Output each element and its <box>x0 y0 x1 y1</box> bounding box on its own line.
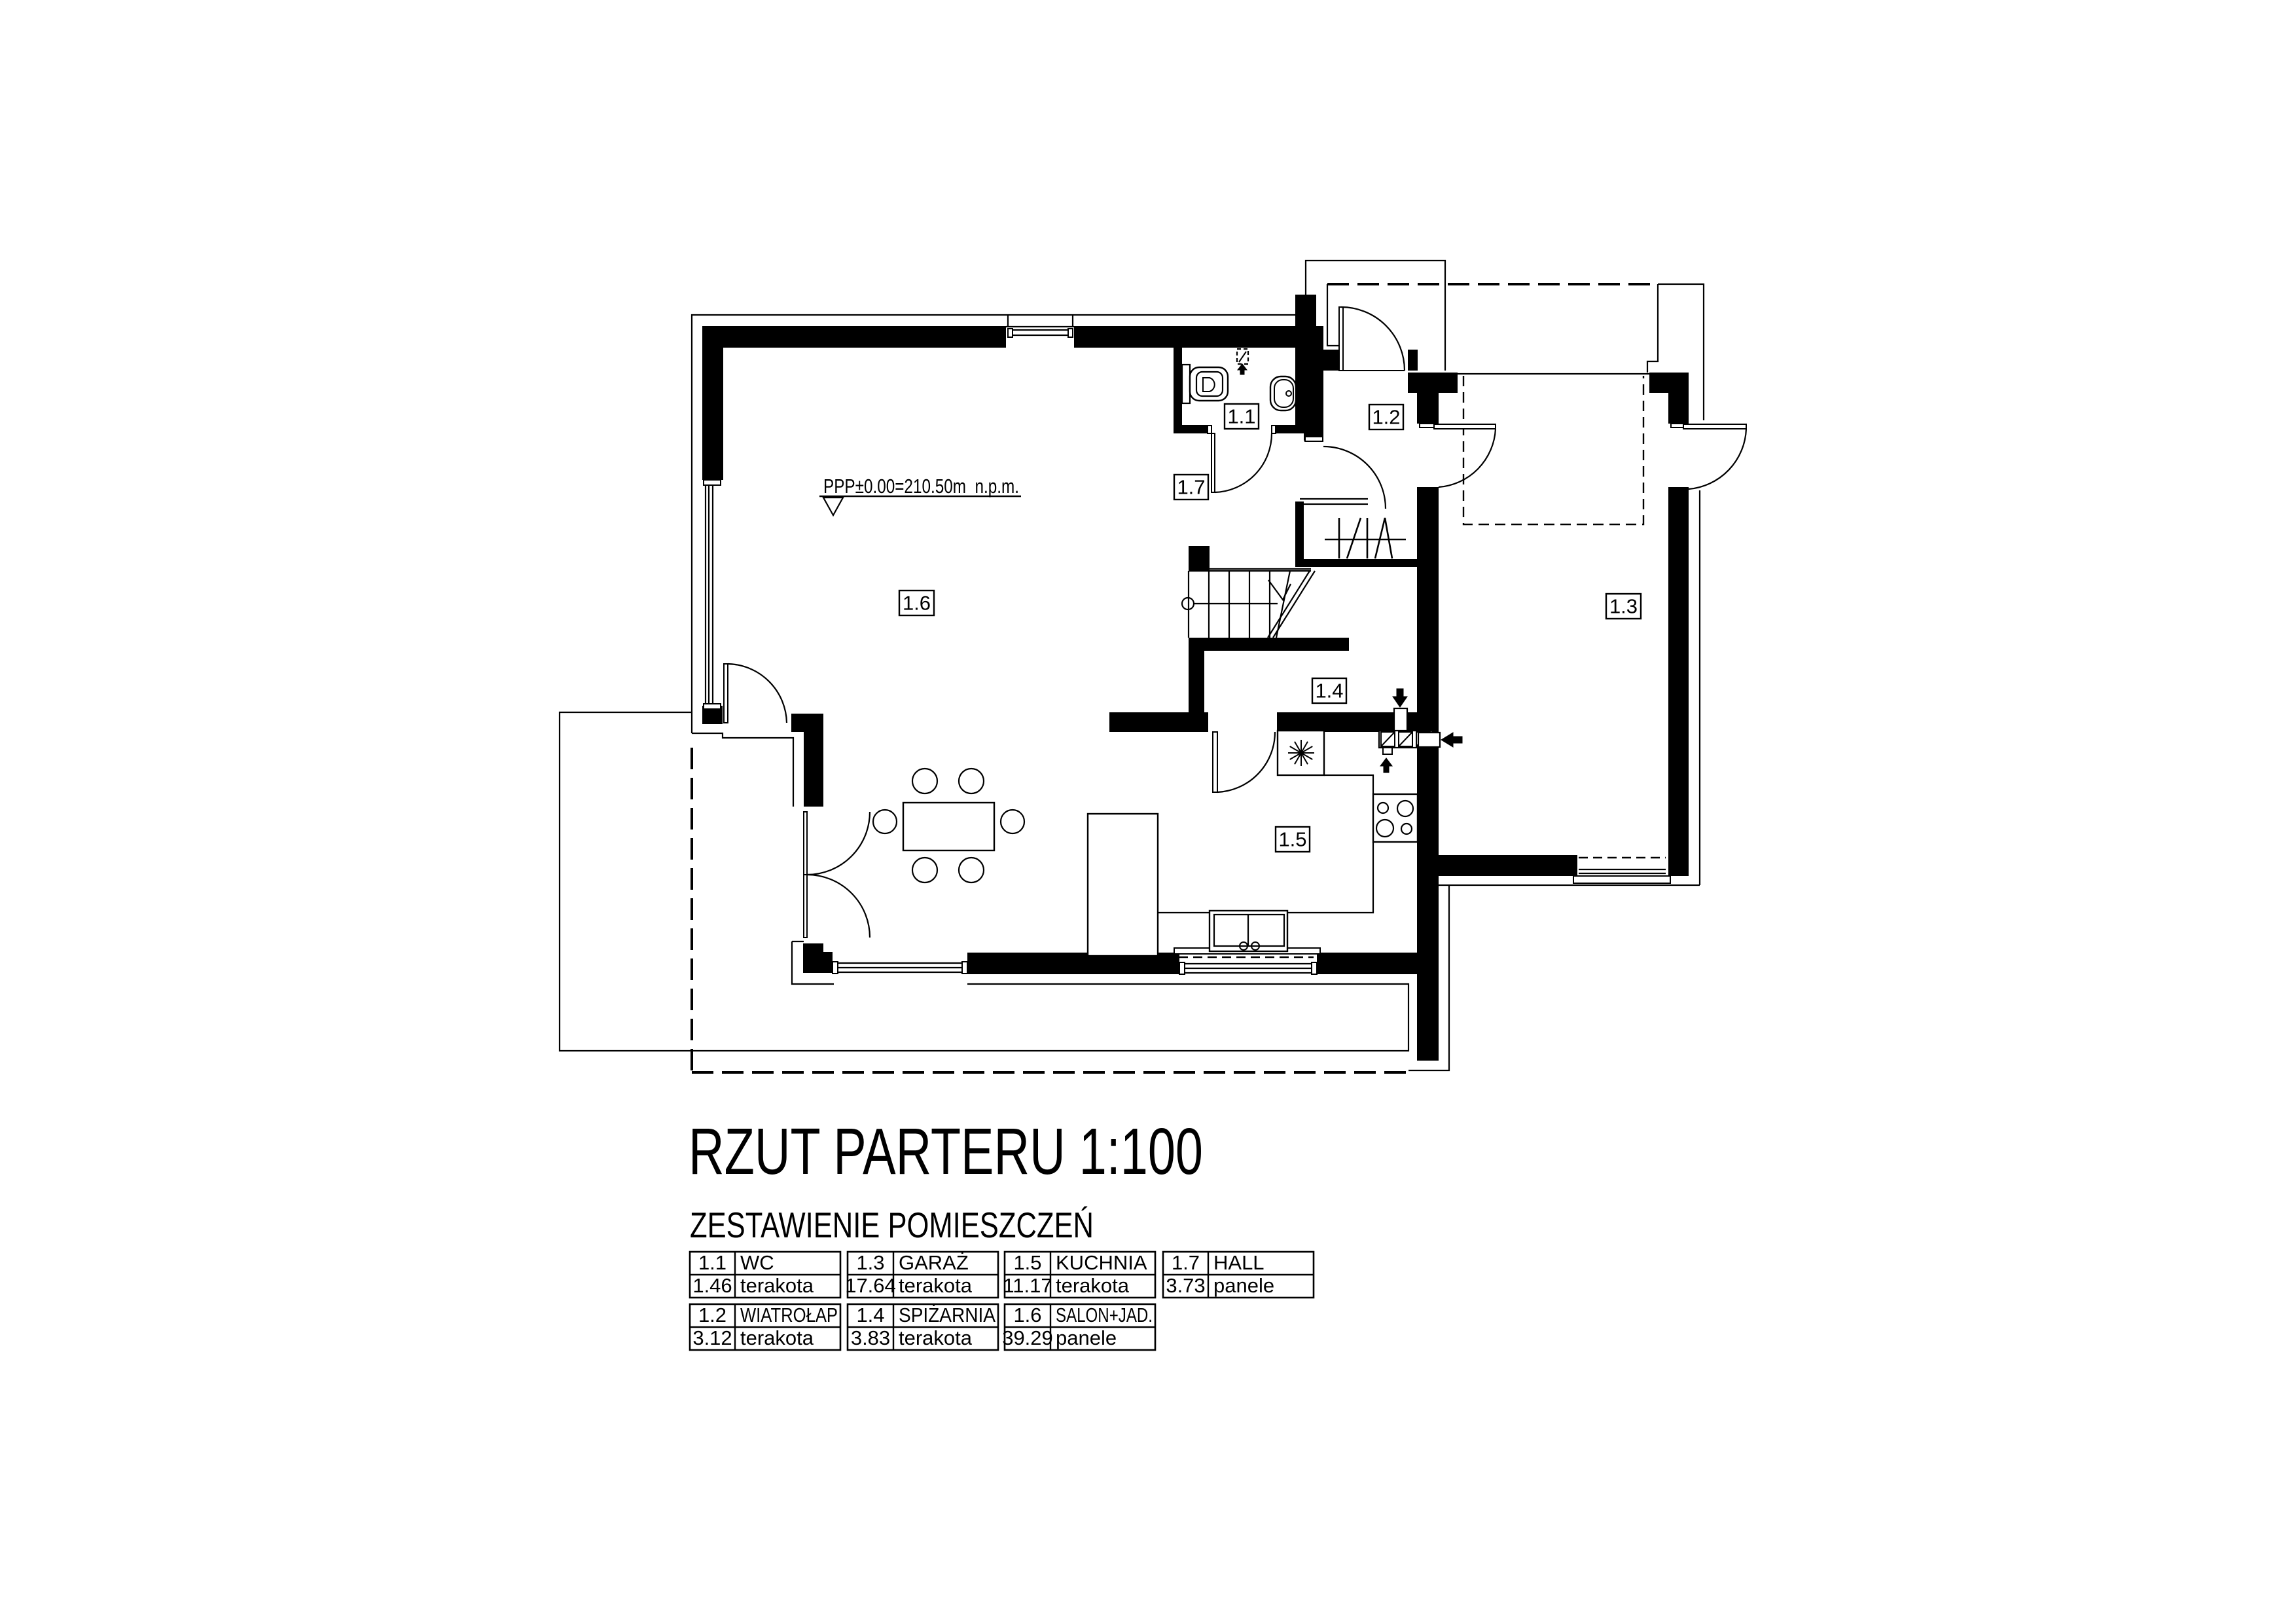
svg-text:WC: WC <box>740 1251 774 1274</box>
svg-text:ZESTAWIENIE POMIESZCZEŃ: ZESTAWIENIE POMIESZCZEŃ <box>690 1205 1094 1245</box>
svg-text:PPP±0.00=210.50m n.p.m.: PPP±0.00=210.50m n.p.m. <box>823 475 1019 498</box>
svg-text:terakota: terakota <box>1056 1274 1130 1297</box>
svg-text:terakota: terakota <box>899 1274 973 1297</box>
svg-text:1.5: 1.5 <box>1278 828 1306 851</box>
svg-text:11.17: 11.17 <box>1003 1274 1052 1297</box>
svg-text:1.2: 1.2 <box>698 1304 726 1326</box>
svg-text:1.6: 1.6 <box>1013 1304 1041 1326</box>
svg-text:1.2: 1.2 <box>1372 406 1400 429</box>
svg-text:1.7: 1.7 <box>1172 1251 1200 1274</box>
svg-text:1.6: 1.6 <box>903 592 931 615</box>
svg-text:SPIŻARNIA: SPIŻARNIA <box>899 1304 996 1326</box>
svg-text:1.4: 1.4 <box>856 1304 884 1326</box>
svg-text:KUCHNIA: KUCHNIA <box>1056 1251 1147 1274</box>
svg-text:WIATROŁAP: WIATROŁAP <box>740 1304 838 1326</box>
svg-text:1.5: 1.5 <box>1013 1251 1041 1274</box>
svg-text:39.29: 39.29 <box>1002 1326 1053 1349</box>
svg-text:1.7: 1.7 <box>1177 476 1205 499</box>
svg-text:1.1: 1.1 <box>698 1251 726 1274</box>
svg-text:1.3: 1.3 <box>856 1251 884 1274</box>
svg-text:1.46: 1.46 <box>692 1274 732 1297</box>
svg-text:3.83: 3.83 <box>851 1326 890 1349</box>
svg-text:SALON+JAD.: SALON+JAD. <box>1056 1304 1153 1326</box>
svg-text:GARAŻ: GARAŻ <box>899 1251 969 1274</box>
svg-text:terakota: terakota <box>899 1326 973 1349</box>
svg-text:HALL: HALL <box>1213 1251 1265 1274</box>
svg-text:3.73: 3.73 <box>1166 1274 1205 1297</box>
svg-text:1.3: 1.3 <box>1609 595 1638 618</box>
svg-text:3.12: 3.12 <box>692 1326 732 1349</box>
svg-text:17.64: 17.64 <box>845 1274 896 1297</box>
svg-text:1.4: 1.4 <box>1315 680 1343 702</box>
svg-text:terakota: terakota <box>740 1326 814 1349</box>
svg-text:1.1: 1.1 <box>1227 405 1255 428</box>
svg-text:RZUT PARTERU 1:100: RZUT PARTERU 1:100 <box>689 1115 1203 1188</box>
svg-text:panele: panele <box>1056 1326 1117 1349</box>
svg-text:panele: panele <box>1213 1274 1274 1297</box>
svg-text:terakota: terakota <box>740 1274 814 1297</box>
